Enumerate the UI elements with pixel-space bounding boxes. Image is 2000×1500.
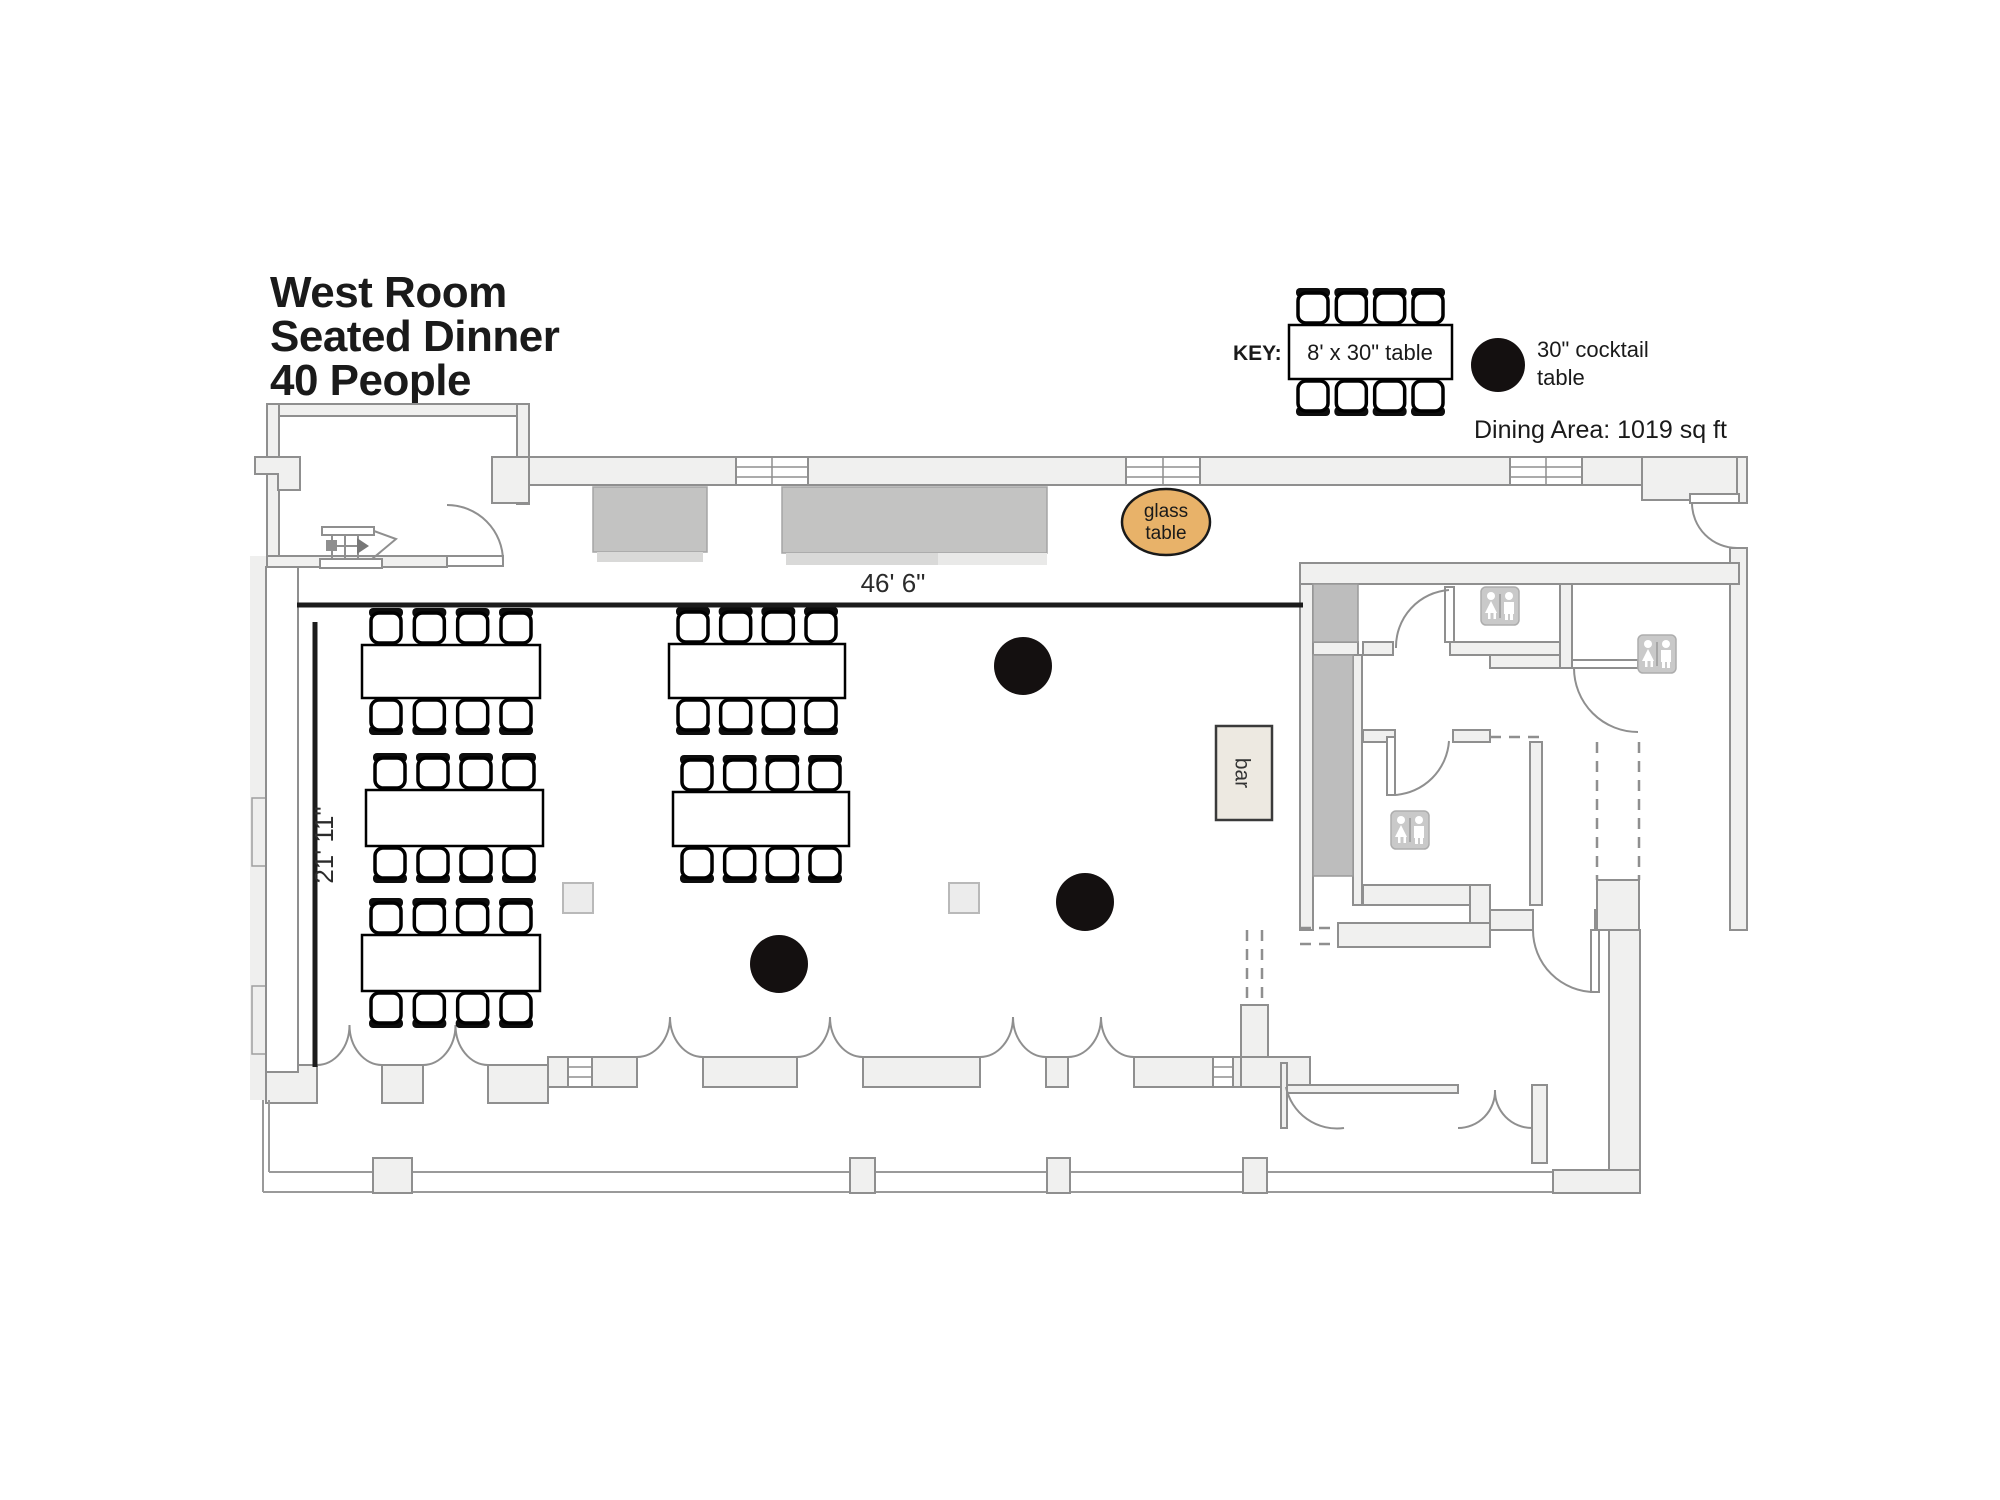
door-swing bbox=[797, 1017, 830, 1057]
door-swing bbox=[1533, 930, 1595, 992]
chair bbox=[682, 848, 712, 878]
key-banquet-table-label: 8' x 30" table bbox=[1307, 340, 1433, 365]
chair bbox=[371, 613, 401, 643]
chair bbox=[414, 700, 444, 730]
terrace-pier bbox=[1047, 1158, 1070, 1193]
cocktail-table bbox=[750, 935, 808, 993]
chair bbox=[682, 760, 712, 790]
door-swing bbox=[456, 1025, 489, 1065]
door-swing bbox=[1068, 1017, 1101, 1057]
wall-north bbox=[529, 457, 1642, 485]
chair bbox=[418, 758, 448, 788]
wall bbox=[1313, 642, 1358, 655]
man-figure-leg bbox=[1415, 838, 1418, 844]
woman-figure-leg bbox=[1404, 837, 1407, 843]
key-cocktail-label-line-2: table bbox=[1537, 365, 1585, 390]
woman-figure-head bbox=[1397, 816, 1405, 824]
chair bbox=[414, 903, 444, 933]
woman-figure-leg bbox=[1494, 613, 1497, 619]
wall bbox=[1241, 1005, 1268, 1057]
chair bbox=[504, 848, 534, 878]
title-line-3: 40 People bbox=[270, 356, 471, 405]
chair bbox=[1336, 293, 1366, 323]
banquet-table bbox=[673, 792, 849, 846]
glass-table-label-line-2: table bbox=[1145, 523, 1186, 544]
chair bbox=[1336, 381, 1366, 411]
man-figure-head bbox=[1505, 592, 1513, 600]
window-seat bbox=[782, 487, 1047, 553]
chair bbox=[763, 612, 793, 642]
chair bbox=[371, 903, 401, 933]
chair bbox=[501, 993, 531, 1023]
banquet-table bbox=[362, 935, 540, 991]
wall bbox=[1363, 642, 1393, 655]
woman-figure-head bbox=[1644, 640, 1652, 648]
chair bbox=[504, 758, 534, 788]
window bbox=[1510, 457, 1582, 485]
window bbox=[736, 457, 808, 485]
chair bbox=[806, 700, 836, 730]
chair bbox=[725, 848, 755, 878]
man-figure-leg bbox=[1667, 662, 1670, 668]
door-leaf bbox=[447, 556, 503, 566]
chair bbox=[461, 848, 491, 878]
woman-figure-head bbox=[1487, 592, 1495, 600]
wall bbox=[1300, 563, 1739, 584]
door-leaf bbox=[1445, 587, 1454, 642]
wall bbox=[1300, 584, 1313, 930]
exterior-shading bbox=[250, 556, 266, 1100]
terrace-pier bbox=[850, 1158, 875, 1193]
chair bbox=[375, 848, 405, 878]
banquet-table bbox=[366, 790, 543, 846]
chair bbox=[461, 758, 491, 788]
page-title: West Room Seated Dinner 40 People bbox=[270, 268, 560, 405]
floor-plan-svg: West Room Seated Dinner 40 People KEY: 8… bbox=[0, 0, 2000, 1500]
wall bbox=[1353, 655, 1362, 905]
bar-label: bar bbox=[1231, 758, 1254, 788]
wall bbox=[492, 457, 529, 503]
man-figure-head bbox=[1662, 640, 1670, 648]
cocktail-table bbox=[1056, 873, 1114, 931]
wall-east bbox=[1730, 548, 1747, 930]
chair bbox=[725, 760, 755, 790]
dimension-depth-label: 21' 11" bbox=[309, 806, 339, 883]
door-swing bbox=[350, 1025, 383, 1065]
door-swing bbox=[1458, 1090, 1495, 1128]
wall bbox=[1530, 742, 1542, 905]
chair bbox=[678, 612, 708, 642]
glass-table-label-line-1: glass bbox=[1144, 501, 1188, 522]
door-swing bbox=[1101, 1017, 1134, 1057]
wall-south bbox=[1241, 1057, 1310, 1087]
door-swing bbox=[1396, 590, 1449, 648]
door-swing bbox=[670, 1017, 703, 1057]
chair bbox=[418, 848, 448, 878]
chair bbox=[458, 903, 488, 933]
door-swing bbox=[317, 1025, 350, 1065]
window-seat bbox=[593, 487, 707, 552]
chair bbox=[1298, 381, 1328, 411]
wall bbox=[1338, 923, 1490, 947]
door-leaf bbox=[1591, 930, 1599, 992]
terrace bbox=[263, 1100, 1640, 1193]
chair bbox=[458, 700, 488, 730]
wall-south bbox=[703, 1057, 797, 1087]
key-cocktail-table-icon bbox=[1471, 338, 1525, 392]
wall bbox=[1281, 1063, 1287, 1128]
banquet-table bbox=[362, 645, 540, 698]
chair bbox=[767, 848, 797, 878]
column bbox=[563, 883, 593, 913]
cocktail-table bbox=[994, 637, 1052, 695]
wall bbox=[1560, 584, 1572, 668]
woman-figure-leg bbox=[1651, 661, 1654, 667]
wall bbox=[1532, 1085, 1547, 1163]
wall bbox=[1609, 930, 1640, 1170]
door-leaf bbox=[1572, 660, 1638, 668]
man-figure-torso bbox=[1414, 826, 1424, 838]
door-swing bbox=[447, 505, 503, 561]
chair bbox=[678, 700, 708, 730]
man-figure-torso bbox=[1661, 650, 1671, 662]
chair bbox=[414, 993, 444, 1023]
door-swing bbox=[830, 1017, 863, 1057]
floor-plan-page: West Room Seated Dinner 40 People KEY: 8… bbox=[0, 0, 2000, 1500]
wall bbox=[1287, 1085, 1458, 1093]
chair bbox=[1413, 381, 1443, 411]
chair bbox=[721, 612, 751, 642]
window bbox=[1126, 457, 1200, 485]
title-line-2: Seated Dinner bbox=[270, 312, 560, 361]
wall bbox=[255, 457, 300, 490]
window bbox=[568, 1057, 592, 1087]
dimension-width-label: 46' 6" bbox=[861, 568, 926, 598]
door-swing bbox=[980, 1017, 1013, 1057]
wall-west bbox=[266, 567, 298, 1072]
chair bbox=[810, 848, 840, 878]
furniture-layer bbox=[362, 607, 1114, 1028]
chair bbox=[1375, 381, 1405, 411]
man-figure-head bbox=[1415, 816, 1423, 824]
fixtures: glass table bar bbox=[1122, 489, 1272, 820]
wall-south bbox=[382, 1065, 423, 1103]
chair bbox=[371, 700, 401, 730]
chair bbox=[501, 613, 531, 643]
title-line-1: West Room bbox=[270, 268, 507, 317]
terrace-pier bbox=[1243, 1158, 1267, 1193]
dining-area-label: Dining Area: 1019 sq ft bbox=[1474, 416, 1727, 444]
man-figure-torso bbox=[1504, 602, 1514, 614]
man-figure-leg bbox=[1420, 838, 1423, 844]
man-figure-leg bbox=[1510, 614, 1513, 620]
chair bbox=[501, 700, 531, 730]
glass-table bbox=[1122, 489, 1210, 555]
wall bbox=[1597, 880, 1639, 930]
restroom-icon bbox=[1638, 635, 1676, 673]
man-figure-leg bbox=[1505, 614, 1508, 620]
woman-figure-leg bbox=[1645, 661, 1648, 667]
chair bbox=[1375, 293, 1405, 323]
door-swing bbox=[637, 1017, 670, 1057]
chair bbox=[810, 760, 840, 790]
restroom-icon bbox=[1481, 587, 1519, 625]
chair bbox=[767, 760, 797, 790]
chair bbox=[763, 700, 793, 730]
woman-figure-leg bbox=[1488, 613, 1491, 619]
wall bbox=[1450, 642, 1562, 655]
windows bbox=[568, 457, 1582, 1087]
terrace-pier bbox=[1553, 1170, 1640, 1193]
shaft bbox=[1313, 655, 1353, 876]
door-swing bbox=[423, 1025, 456, 1065]
wall bbox=[1490, 655, 1560, 668]
chair bbox=[458, 613, 488, 643]
door-swing bbox=[1013, 1017, 1046, 1057]
door-swing bbox=[1574, 668, 1638, 732]
terrace-pier bbox=[373, 1158, 412, 1193]
banquet-table bbox=[669, 644, 845, 698]
wall-south bbox=[1046, 1057, 1068, 1087]
wall bbox=[267, 404, 529, 416]
wall-south bbox=[488, 1065, 548, 1103]
wall bbox=[1453, 730, 1490, 742]
chair bbox=[375, 758, 405, 788]
wall-south bbox=[863, 1057, 980, 1087]
window bbox=[1213, 1057, 1233, 1087]
door-leaf bbox=[1690, 494, 1739, 503]
wall bbox=[1490, 910, 1533, 930]
chair bbox=[1413, 293, 1443, 323]
key-label: KEY: bbox=[1233, 342, 1282, 365]
restroom-icon bbox=[1391, 811, 1429, 849]
legend: KEY: 8' x 30" table 30" cocktail table D… bbox=[1233, 288, 1727, 444]
chair bbox=[806, 612, 836, 642]
chair bbox=[721, 700, 751, 730]
chair bbox=[371, 993, 401, 1023]
woman-figure-leg bbox=[1398, 837, 1401, 843]
chair bbox=[501, 903, 531, 933]
chair bbox=[1298, 293, 1328, 323]
man-figure-leg bbox=[1662, 662, 1665, 668]
door-swing bbox=[1395, 741, 1449, 795]
chair bbox=[414, 613, 444, 643]
shaft bbox=[1313, 584, 1358, 642]
door-swing bbox=[1495, 1090, 1532, 1128]
door-leaf bbox=[1387, 737, 1395, 795]
door-swing bbox=[1692, 503, 1737, 548]
key-cocktail-label-line-1: 30" cocktail bbox=[1537, 337, 1649, 362]
chair bbox=[458, 993, 488, 1023]
column bbox=[949, 883, 979, 913]
